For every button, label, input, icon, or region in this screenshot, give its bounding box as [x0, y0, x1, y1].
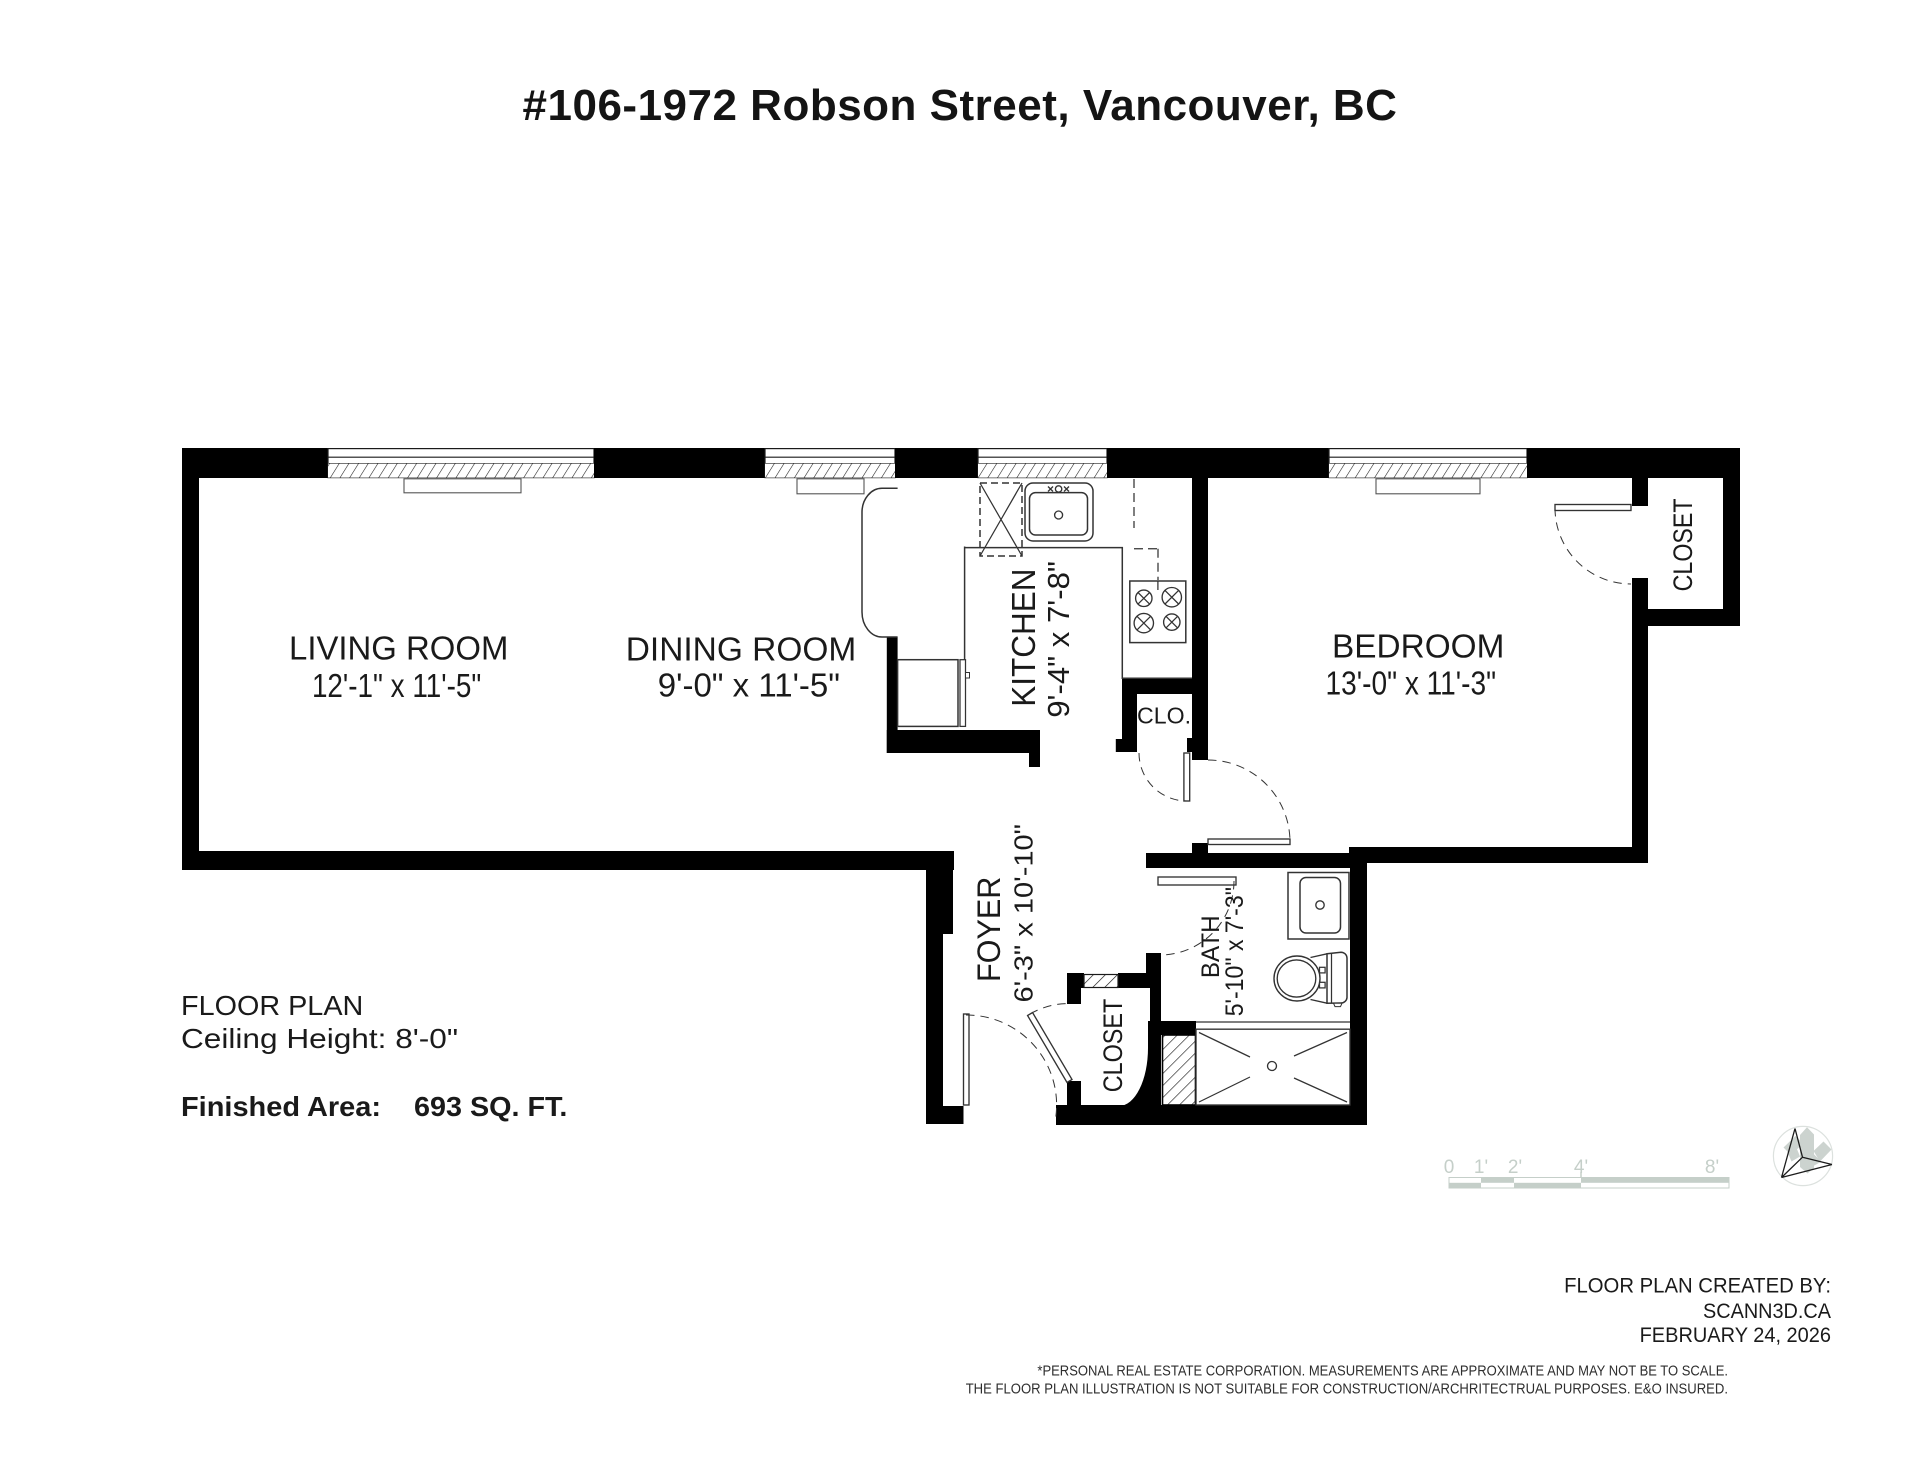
svg-text:FOYER: FOYER [971, 877, 1007, 982]
svg-text:1': 1' [1474, 1157, 1488, 1178]
svg-text:CLO.: CLO. [1137, 703, 1191, 729]
svg-text:CLOSET: CLOSET [1668, 498, 1698, 591]
svg-text:FLOOR PLAN: FLOOR PLAN [181, 990, 363, 1021]
svg-text:13'-0" x 11'-3": 13'-0" x 11'-3" [1326, 665, 1497, 702]
svg-text:5'-10" x 7'-3": 5'-10" x 7'-3" [1221, 887, 1249, 1016]
svg-text:693 SQ. FT.: 693 SQ. FT. [414, 1091, 567, 1122]
svg-text:DINING ROOM: DINING ROOM [626, 630, 857, 667]
svg-text:0: 0 [1444, 1157, 1455, 1178]
svg-text:LIVING ROOM: LIVING ROOM [289, 630, 508, 667]
svg-text:2': 2' [1508, 1157, 1522, 1178]
svg-text:8': 8' [1705, 1157, 1719, 1178]
svg-text:BEDROOM: BEDROOM [1332, 628, 1504, 665]
svg-text:SCANN3D.CA: SCANN3D.CA [1703, 1300, 1831, 1323]
svg-text:Finished Area:: Finished Area: [181, 1091, 381, 1122]
svg-text:12'-1" x 11'-5": 12'-1" x 11'-5" [312, 667, 481, 704]
svg-text:FLOOR PLAN CREATED BY:: FLOOR PLAN CREATED BY: [1564, 1275, 1831, 1298]
svg-text:CLOSET: CLOSET [1098, 999, 1128, 1093]
svg-text:#106-1972 Robson Street, Vanco: #106-1972 Robson Street, Vancouver, BC [523, 81, 1398, 130]
svg-text:6'-3" x 10'-10": 6'-3" x 10'-10" [1009, 824, 1039, 1003]
svg-text:9'-0" x 11'-5": 9'-0" x 11'-5" [658, 666, 840, 703]
svg-text:9'-4" x 7'-8": 9'-4" x 7'-8" [1041, 561, 1076, 718]
svg-text:THE FLOOR PLAN ILLUSTRATION IS: THE FLOOR PLAN ILLUSTRATION IS NOT SUITA… [966, 1382, 1728, 1398]
svg-text:Ceiling Height: 8'-0": Ceiling Height: 8'-0" [181, 1023, 458, 1054]
svg-text:KITCHEN: KITCHEN [1005, 568, 1042, 706]
svg-text:*PERSONAL REAL ESTATE CORPORAT: *PERSONAL REAL ESTATE CORPORATION. MEASU… [1037, 1364, 1728, 1380]
svg-text:FEBRUARY 24, 2026: FEBRUARY 24, 2026 [1640, 1324, 1831, 1347]
